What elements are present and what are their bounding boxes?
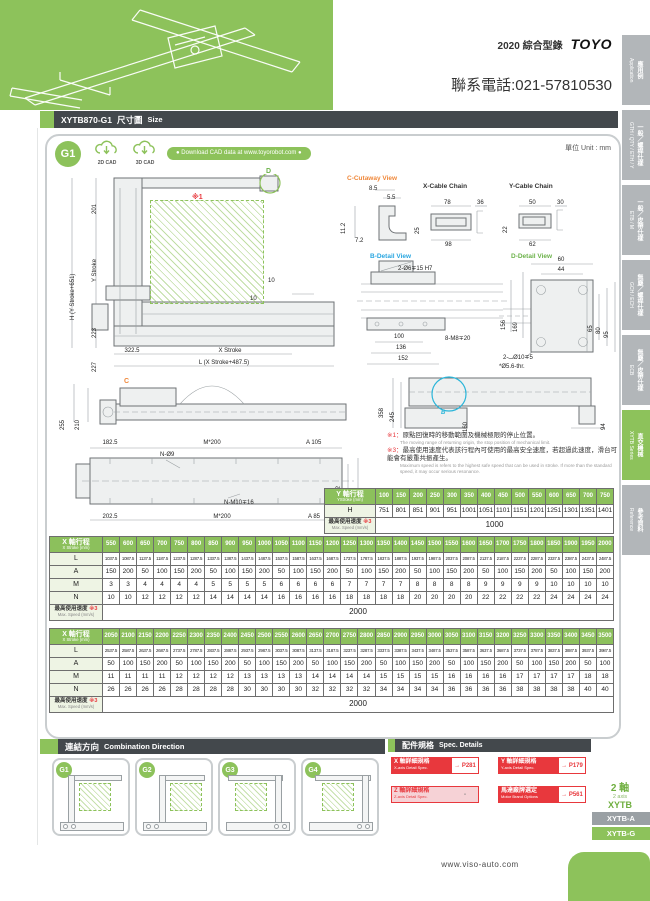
- table-cell: 1600: [460, 537, 477, 553]
- table-cell: 30: [239, 684, 256, 697]
- table-cell: 1387.5: [222, 553, 239, 566]
- table-cell: 10: [579, 579, 596, 592]
- table-cell: 100: [494, 566, 511, 579]
- spec-page-ref: -: [452, 787, 478, 802]
- sidebar-tab-ecb[interactable]: ECB 無塵／皮帶仕樣: [622, 335, 650, 405]
- spec-page-ref: → P179: [559, 758, 585, 773]
- table-cell: 22: [494, 592, 511, 605]
- table-cell: 1837.5: [375, 553, 392, 566]
- table-cell: 11: [154, 671, 171, 684]
- table-cell: 3637.5: [477, 645, 494, 658]
- table-cell: 10: [103, 592, 120, 605]
- table-cell: 100: [290, 566, 307, 579]
- spec-section-bar: 配件規格 Spec. Details: [395, 739, 591, 752]
- table-cell: 34: [426, 684, 443, 697]
- table-cell: 40: [579, 684, 596, 697]
- table-cell: 18: [579, 671, 596, 684]
- x-stroke-table-2: X 軸行程X Stroke (mm)2050210021502200225023…: [49, 628, 614, 713]
- table-cell: N: [50, 684, 103, 697]
- sidebar-tab-gth-qty-eth-y[interactable]: GTH / QTY / ETH / Y 一般／螺桿仕樣: [622, 110, 650, 180]
- table-cell: 200: [120, 566, 137, 579]
- table-cell: 150: [239, 566, 256, 579]
- table-cell: 2987.5: [256, 645, 273, 658]
- combination-schematic: [60, 775, 124, 831]
- table-cell: 12: [171, 671, 188, 684]
- table-cell: 7: [358, 579, 375, 592]
- view-title: Y-Cable Chain: [509, 184, 553, 191]
- dim-label: 322.5: [110, 348, 154, 354]
- table-cell: 200: [562, 658, 579, 671]
- table-cell: 5: [205, 579, 222, 592]
- table-cell: 2750: [341, 629, 358, 645]
- callout: *Ø5.6-thr.: [499, 364, 525, 370]
- dim-label: 50: [529, 200, 536, 206]
- table-cell: 12: [137, 592, 154, 605]
- table-cell: 250: [427, 489, 444, 505]
- table-cell: 8: [426, 579, 443, 592]
- table-cell: 32: [341, 684, 358, 697]
- table-cell: 38: [511, 684, 528, 697]
- table-cell: 2550: [273, 629, 290, 645]
- table-cell: X 軸行程X Stroke (mm): [50, 629, 103, 645]
- callout: 2-⌴Ø10∓5: [503, 355, 533, 361]
- table-cell: 8: [443, 579, 460, 592]
- sidebar-tab-xytb-series[interactable]: XYTB Series 直交機械: [622, 410, 650, 480]
- table-cell: 1100: [290, 537, 307, 553]
- table-cell: 1301: [563, 505, 580, 518]
- chain-linework: [419, 184, 505, 254]
- table-cell: 2450: [239, 629, 256, 645]
- table-cell: 10: [596, 579, 613, 592]
- table-cell: 32: [307, 684, 324, 697]
- spec-link-motor-brand[interactable]: 馬達廠牌選定Motor Brand Options → P561: [498, 786, 586, 803]
- table-cell: 50: [307, 658, 324, 671]
- table-cell: 34: [409, 684, 426, 697]
- series-name: XYTB: [590, 800, 650, 811]
- combination-schematic: [309, 775, 373, 831]
- table-cell: 200: [222, 658, 239, 671]
- x-stroke-table-1: X 軸行程X Stroke (mm)5506006507007508008509…: [49, 536, 614, 621]
- table-cell: 10: [120, 592, 137, 605]
- table-cell: 1450: [409, 537, 426, 553]
- table-cell: 50: [545, 566, 562, 579]
- table-cell: 200: [494, 658, 511, 671]
- table-cell: 550: [529, 489, 546, 505]
- table-cell: 3150: [477, 629, 494, 645]
- view-title: C-Cutaway View: [347, 176, 397, 183]
- dim-label: 245: [390, 412, 396, 422]
- table-cell: 1537.5: [273, 553, 290, 566]
- table-cell: 3: [120, 579, 137, 592]
- table-cell: 24: [596, 592, 613, 605]
- table-cell: 32: [358, 684, 375, 697]
- table-cell: 2850: [375, 629, 392, 645]
- callout: N-Ø9: [160, 452, 174, 458]
- table-cell: 750: [597, 489, 614, 505]
- table-cell: 17: [562, 671, 579, 684]
- table-cell-text: YStroke (mm): [325, 498, 375, 502]
- table-cell: 5: [256, 579, 273, 592]
- dim-label: 10: [250, 296, 257, 302]
- table-cell: 750: [171, 537, 188, 553]
- dim-label: 60: [541, 257, 581, 263]
- table-cell: 2350: [205, 629, 222, 645]
- table-cell: 150: [171, 566, 188, 579]
- spec-label-en: Y-axis Detail Spec.: [501, 766, 557, 770]
- table-cell: 50: [341, 566, 358, 579]
- sidebar-tab-reference[interactable]: Reference 參考資料: [622, 485, 650, 555]
- table-cell: 5: [222, 579, 239, 592]
- table-cell: 200: [410, 489, 427, 505]
- detail-c-marker: C: [124, 378, 129, 385]
- table-cell: 17: [528, 671, 545, 684]
- spec-link-x-axis[interactable]: X 軸詳細規格X-axis Detail Spec. → P281: [391, 757, 479, 774]
- table-cell: 20: [409, 592, 426, 605]
- table-cell: 3000: [426, 629, 443, 645]
- table-cell: 150: [579, 566, 596, 579]
- table-cell: 13: [239, 671, 256, 684]
- dim-label: 7.2: [355, 238, 363, 244]
- note-ref: ※1：: [387, 432, 403, 439]
- table-cell: 150: [307, 566, 324, 579]
- table-cell: 850: [205, 537, 222, 553]
- spec-title-zh: 配件規格: [402, 740, 434, 751]
- table-cell: 3037.5: [273, 645, 290, 658]
- table-cell: 3300: [528, 629, 545, 645]
- table-cell: 1351: [580, 505, 597, 518]
- table-cell: 300: [444, 489, 461, 505]
- table-cell: 16: [290, 592, 307, 605]
- table-cell: 150: [273, 658, 290, 671]
- table-cell: 50: [375, 658, 392, 671]
- table-cell: 1187.5: [154, 553, 171, 566]
- table-cell: 2000: [596, 537, 613, 553]
- table-cell: 1437.5: [239, 553, 256, 566]
- table-cell: 18: [596, 671, 613, 684]
- table-cell: 15: [375, 671, 392, 684]
- detail-b-marker: B: [441, 410, 445, 416]
- table-cell: 50: [409, 566, 426, 579]
- table-cell: 150: [205, 658, 222, 671]
- table-cell: 16: [307, 592, 324, 605]
- cad-3d-button[interactable]: 3D CAD: [127, 139, 163, 166]
- table-cell: 50: [205, 566, 222, 579]
- work-envelope-hatch: [150, 200, 264, 304]
- table-cell: 1101: [495, 505, 512, 518]
- table-cell: 100: [188, 658, 205, 671]
- tab-label-en: GCH / ECH: [628, 282, 634, 308]
- dim-label: 44: [541, 267, 581, 273]
- table-cell: 200: [256, 566, 273, 579]
- dim-label: 65: [588, 325, 594, 332]
- table-cell: N: [50, 592, 103, 605]
- table-cell: 2600: [290, 629, 307, 645]
- combination-card-g4: G4: [301, 758, 379, 836]
- tab-xytb-a[interactable]: XYTB-A: [592, 812, 650, 825]
- dim-label: 80: [596, 327, 602, 334]
- table-cell: 1550: [443, 537, 460, 553]
- table-cell: 1137.5: [137, 553, 154, 566]
- dim-label: X Stroke: [190, 348, 270, 354]
- table-cell: 8: [460, 579, 477, 592]
- table-cell: 50: [137, 566, 154, 579]
- sidebar-tab-gch-ech[interactable]: GCH / ECH 無塵／螺桿仕樣: [622, 260, 650, 330]
- table-cell: 12: [205, 671, 222, 684]
- dim-label: 223: [92, 328, 98, 338]
- table-cell: H: [325, 505, 376, 518]
- table-cell: 1401: [597, 505, 614, 518]
- table-cell: 16: [477, 671, 494, 684]
- table-cell: 1287.5: [188, 553, 205, 566]
- table-cell: 38: [545, 684, 562, 697]
- tab-xytb-g[interactable]: XYTB-G: [592, 827, 650, 840]
- table-cell: 100: [324, 658, 341, 671]
- unit-label: 單位 Unit : mm: [515, 143, 611, 153]
- table-cell: 2400: [222, 629, 239, 645]
- table-cell: 4: [154, 579, 171, 592]
- table-cell: 2650: [307, 629, 324, 645]
- side-view-drawing: 255 210 C: [62, 376, 362, 436]
- table-cell: 3937.5: [579, 645, 596, 658]
- table-cell: 6: [324, 579, 341, 592]
- table-cell: 34: [375, 684, 392, 697]
- table-cell: 100: [120, 658, 137, 671]
- combination-card-g1: G1: [52, 758, 130, 836]
- series-indicator: 2 軸 2 axis XYTB: [590, 783, 650, 811]
- table-cell: 14: [307, 671, 324, 684]
- combination-title-zh: 連結方向: [65, 741, 99, 753]
- table-cell: 3250: [511, 629, 528, 645]
- table-cell: 26: [137, 684, 154, 697]
- dim-label: 100: [375, 334, 423, 340]
- table-cell: 40: [596, 684, 613, 697]
- table-cell: 450: [495, 489, 512, 505]
- x-axis-rear-view: 358 245 B 160 94: [383, 372, 619, 432]
- cad-download-link[interactable]: ● Download CAD data at www.toyorobot.com…: [167, 147, 311, 160]
- table-cell: 1800: [528, 537, 545, 553]
- callout: 2-Ø6∓15 H7: [398, 266, 432, 272]
- dimension-drawing-panel: G1 2D CAD 3D CAD ● Download CAD data at …: [45, 134, 621, 739]
- table-cell: 100: [222, 566, 239, 579]
- table-cell: 14: [324, 671, 341, 684]
- spec-link-y-axis[interactable]: Y 軸詳細規格Y-axis Detail Spec. → P179: [498, 757, 586, 774]
- dim-label: 78: [444, 200, 451, 206]
- dim-label: 95: [604, 331, 610, 338]
- table-cell: 2100: [120, 629, 137, 645]
- table-cell: 2900: [392, 629, 409, 645]
- table-cell: 3137.5: [307, 645, 324, 658]
- table-cell: 2787.5: [188, 645, 205, 658]
- table-cell: 1887.5: [392, 553, 409, 566]
- table-cell: 2287.5: [528, 553, 545, 566]
- dim-label: A 105: [306, 440, 321, 446]
- spec-label-en: X-axis Detail Spec.: [394, 766, 450, 770]
- cad-2d-button[interactable]: 2D CAD: [89, 139, 125, 166]
- note-ref: ※3：: [387, 447, 403, 454]
- table-cell: 36: [477, 684, 494, 697]
- table-cell: 32: [324, 684, 341, 697]
- table-cell: 200: [392, 566, 409, 579]
- table-cell: 350: [461, 489, 478, 505]
- table-cell: 3387.5: [392, 645, 409, 658]
- table-cell: 700: [154, 537, 171, 553]
- table-cell: 200: [290, 658, 307, 671]
- dim-label: 8.5: [369, 186, 377, 192]
- table-cell: 550: [103, 537, 120, 553]
- table-cell: 9: [528, 579, 545, 592]
- table-cell: 3737.5: [511, 645, 528, 658]
- catalog-page: 2020 綜合型錄TOYO 聯系電話:021-57810530 Applicat…: [0, 0, 650, 901]
- table-cell: 34: [392, 684, 409, 697]
- contact-phone: 聯系電話:021-57810530: [380, 74, 612, 95]
- table-cell: 6: [290, 579, 307, 592]
- table-cell: 18: [375, 592, 392, 605]
- table-cell: 801: [393, 505, 410, 518]
- tab-label-en: Application: [628, 58, 634, 82]
- table-cell: 16: [443, 671, 460, 684]
- g1-variant-badge: G1: [55, 141, 81, 167]
- table-cell: 17: [545, 671, 562, 684]
- table-cell: 11: [103, 671, 120, 684]
- table-cell: 2337.5: [545, 553, 562, 566]
- tab-label-zh: 無塵／皮帶仕樣: [635, 349, 644, 391]
- table-cell: 15: [409, 671, 426, 684]
- size-title-zh: 尺寸圖: [117, 114, 143, 126]
- table-cell: 200: [358, 658, 375, 671]
- table-cell: 1337.5: [205, 553, 222, 566]
- table-cell: 1237.5: [171, 553, 188, 566]
- dim-label: 94: [601, 423, 607, 430]
- rear-view-linework: [383, 372, 619, 432]
- table-cell: 3287.5: [358, 645, 375, 658]
- table-cell: 951: [444, 505, 461, 518]
- table-cell: 18: [392, 592, 409, 605]
- section-bar-accent: [40, 739, 58, 754]
- d-detail-view: D-Detail View 60 44 65 80: [495, 252, 619, 372]
- dim-label: 152: [367, 356, 439, 362]
- spec-label-en: Z-axis Detail Spec.: [394, 795, 450, 799]
- combination-title-en: Combination Direction: [104, 742, 184, 751]
- dim-label: L (X Stroke+487.5): [154, 360, 294, 366]
- table-cell: 2700: [324, 629, 341, 645]
- table-cell: 12: [188, 671, 205, 684]
- table-cell-text: Max. Speed (mm/s): [50, 705, 102, 709]
- table-cell: 1000: [256, 537, 273, 553]
- tab-label-en: XYTB Series: [628, 431, 634, 460]
- tab-label-en: ETB / M: [628, 211, 634, 229]
- catalog-title: 2020 綜合型錄: [498, 41, 563, 52]
- table-cell: 100: [596, 658, 613, 671]
- table-cell: 2937.5: [239, 645, 256, 658]
- table-cell: 14: [239, 592, 256, 605]
- table-cell: 150: [409, 658, 426, 671]
- table-cell: 28: [205, 684, 222, 697]
- table-cell: 12: [222, 671, 239, 684]
- table-cell: 36: [443, 684, 460, 697]
- table-cell: 150: [137, 658, 154, 671]
- section-bar-accent: [388, 739, 395, 752]
- table-cell: 最高使用速度 ※3Max. Speed (mm/s): [50, 605, 103, 621]
- table-cell: 2000: [103, 605, 614, 621]
- table-cell: 150: [375, 566, 392, 579]
- size-title-en: Size: [148, 115, 163, 124]
- actuator-wireframe-drawing: [0, 0, 333, 110]
- table-cell: 30: [273, 684, 290, 697]
- spec-page-ref: → P281: [452, 758, 478, 773]
- table-cell: 650: [137, 537, 154, 553]
- table-cell-text: X Stroke (mm): [50, 546, 102, 550]
- brand-logo: TOYO: [571, 36, 612, 52]
- table-cell: 20: [460, 592, 477, 605]
- size-section-bar: XYTB870-G1 尺寸圖 Size: [54, 111, 618, 128]
- side-view-linework: [62, 376, 362, 436]
- table-cell: 15: [392, 671, 409, 684]
- table-cell: 100: [562, 566, 579, 579]
- table-cell: 17: [511, 671, 528, 684]
- table-cell: 1300: [358, 537, 375, 553]
- spec-page-ref: → P561: [559, 787, 585, 802]
- table-cell: 1037.5: [103, 553, 120, 566]
- tab-label-zh: 一般／皮帶仕樣: [635, 199, 644, 241]
- table-cell: 900: [222, 537, 239, 553]
- table-cell: M: [50, 671, 103, 684]
- table-cell: 1250: [341, 537, 358, 553]
- table-cell: 1687.5: [324, 553, 341, 566]
- table-cell: 3400: [562, 629, 579, 645]
- table-cell: 11: [120, 671, 137, 684]
- table-cell: 4: [188, 579, 205, 592]
- table-cell: 3987.5: [596, 645, 613, 658]
- table-cell: 13: [256, 671, 273, 684]
- sidebar-tab-application[interactable]: Application 應用例: [622, 35, 650, 105]
- table-cell: 13: [290, 671, 307, 684]
- table-cell: 3200: [494, 629, 511, 645]
- dim-label: 98: [445, 242, 452, 248]
- table-cell: 1787.5: [358, 553, 375, 566]
- table-cell: 600: [546, 489, 563, 505]
- table-cell: 2237.5: [511, 553, 528, 566]
- table-cell: 14: [205, 592, 222, 605]
- page-margin-rule: [37, 128, 38, 845]
- table-cell: 200: [528, 566, 545, 579]
- table-cell: 2737.5: [171, 645, 188, 658]
- table-cell: 2187.5: [494, 553, 511, 566]
- table-cell: 1500: [426, 537, 443, 553]
- table-cell: 4: [137, 579, 154, 592]
- table-cell: 14: [256, 592, 273, 605]
- note-text-en: Maximum speed is refers to the highest s…: [400, 463, 619, 474]
- table-cell: 28: [171, 684, 188, 697]
- catalog-title-line: 2020 綜合型錄TOYO: [400, 36, 612, 52]
- front-view-drawing: H (Y Stroke+651) 201 Y Stroke 223 227 ※1…: [62, 174, 347, 374]
- table-cell: 10: [545, 579, 562, 592]
- tab-label-zh: 直交機械: [635, 433, 644, 457]
- note-text-zh: 原點回復時的移動範圍及機械極限的停止位置。: [403, 432, 540, 439]
- dim-label: 202.5: [90, 514, 130, 520]
- table-cell: 100: [392, 658, 409, 671]
- table-cell: 800: [188, 537, 205, 553]
- table-cell: 2950: [409, 629, 426, 645]
- tab-label-zh: 應用例: [635, 61, 644, 79]
- table-cell: L: [50, 553, 103, 566]
- table-cell: 500: [512, 489, 529, 505]
- table-cell: 3887.5: [562, 645, 579, 658]
- section-bar-accent: [40, 111, 54, 128]
- table-cell: X 軸行程X Stroke (mm): [50, 537, 103, 553]
- table-cell: 200: [324, 566, 341, 579]
- table-cell: 24: [545, 592, 562, 605]
- sidebar-tab-etb-m[interactable]: ETB / M 一般／皮帶仕樣: [622, 185, 650, 255]
